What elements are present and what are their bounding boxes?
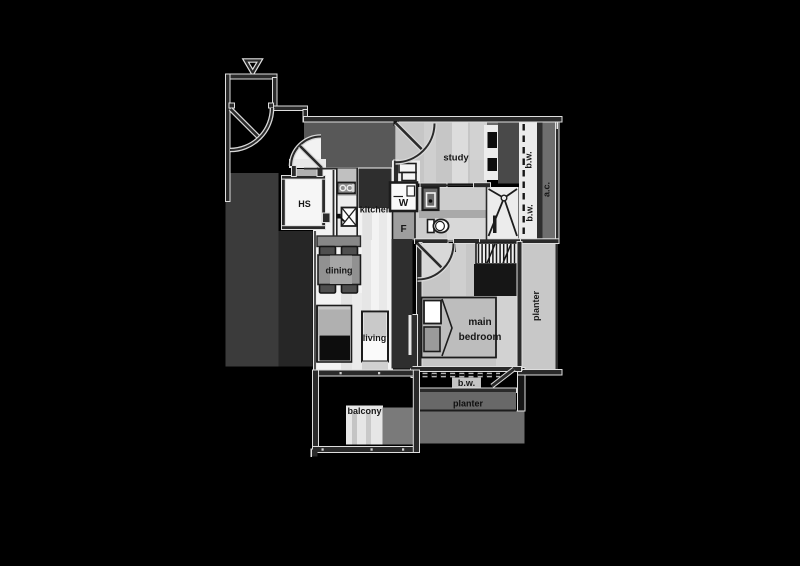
- svg-text:bedroom: bedroom: [459, 332, 502, 343]
- svg-text:main: main: [468, 317, 491, 328]
- svg-text:F: F: [400, 224, 406, 235]
- svg-text:b.w.: b.w.: [524, 151, 534, 168]
- svg-text:balcony: balcony: [347, 406, 381, 416]
- svg-text:a.c.: a.c.: [542, 182, 552, 197]
- svg-text:living: living: [363, 333, 387, 343]
- svg-text:study: study: [443, 153, 469, 164]
- svg-text:W: W: [399, 198, 409, 209]
- svg-text:dining: dining: [326, 266, 353, 276]
- svg-text:HS: HS: [298, 199, 311, 209]
- svg-text:planter: planter: [453, 399, 484, 409]
- svg-text:planter: planter: [531, 291, 541, 322]
- svg-text:b.w.: b.w.: [458, 378, 475, 388]
- svg-text:kitchen: kitchen: [360, 205, 392, 215]
- svg-text:b.w.: b.w.: [525, 204, 535, 221]
